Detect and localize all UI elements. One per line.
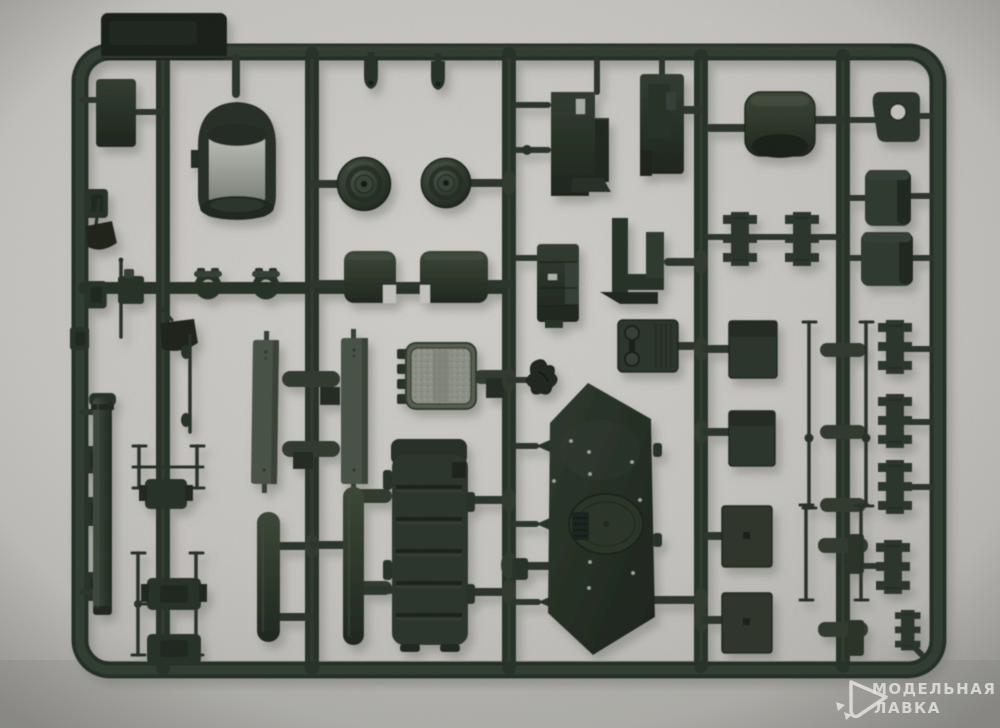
- sprue-photo: МОДЕЛЬНАЯ ЛАВКА: [0, 0, 1000, 728]
- photo-grain-overlay: [0, 0, 1000, 728]
- photo-stage: МОДЕЛЬНАЯ ЛАВКА: [0, 0, 1000, 728]
